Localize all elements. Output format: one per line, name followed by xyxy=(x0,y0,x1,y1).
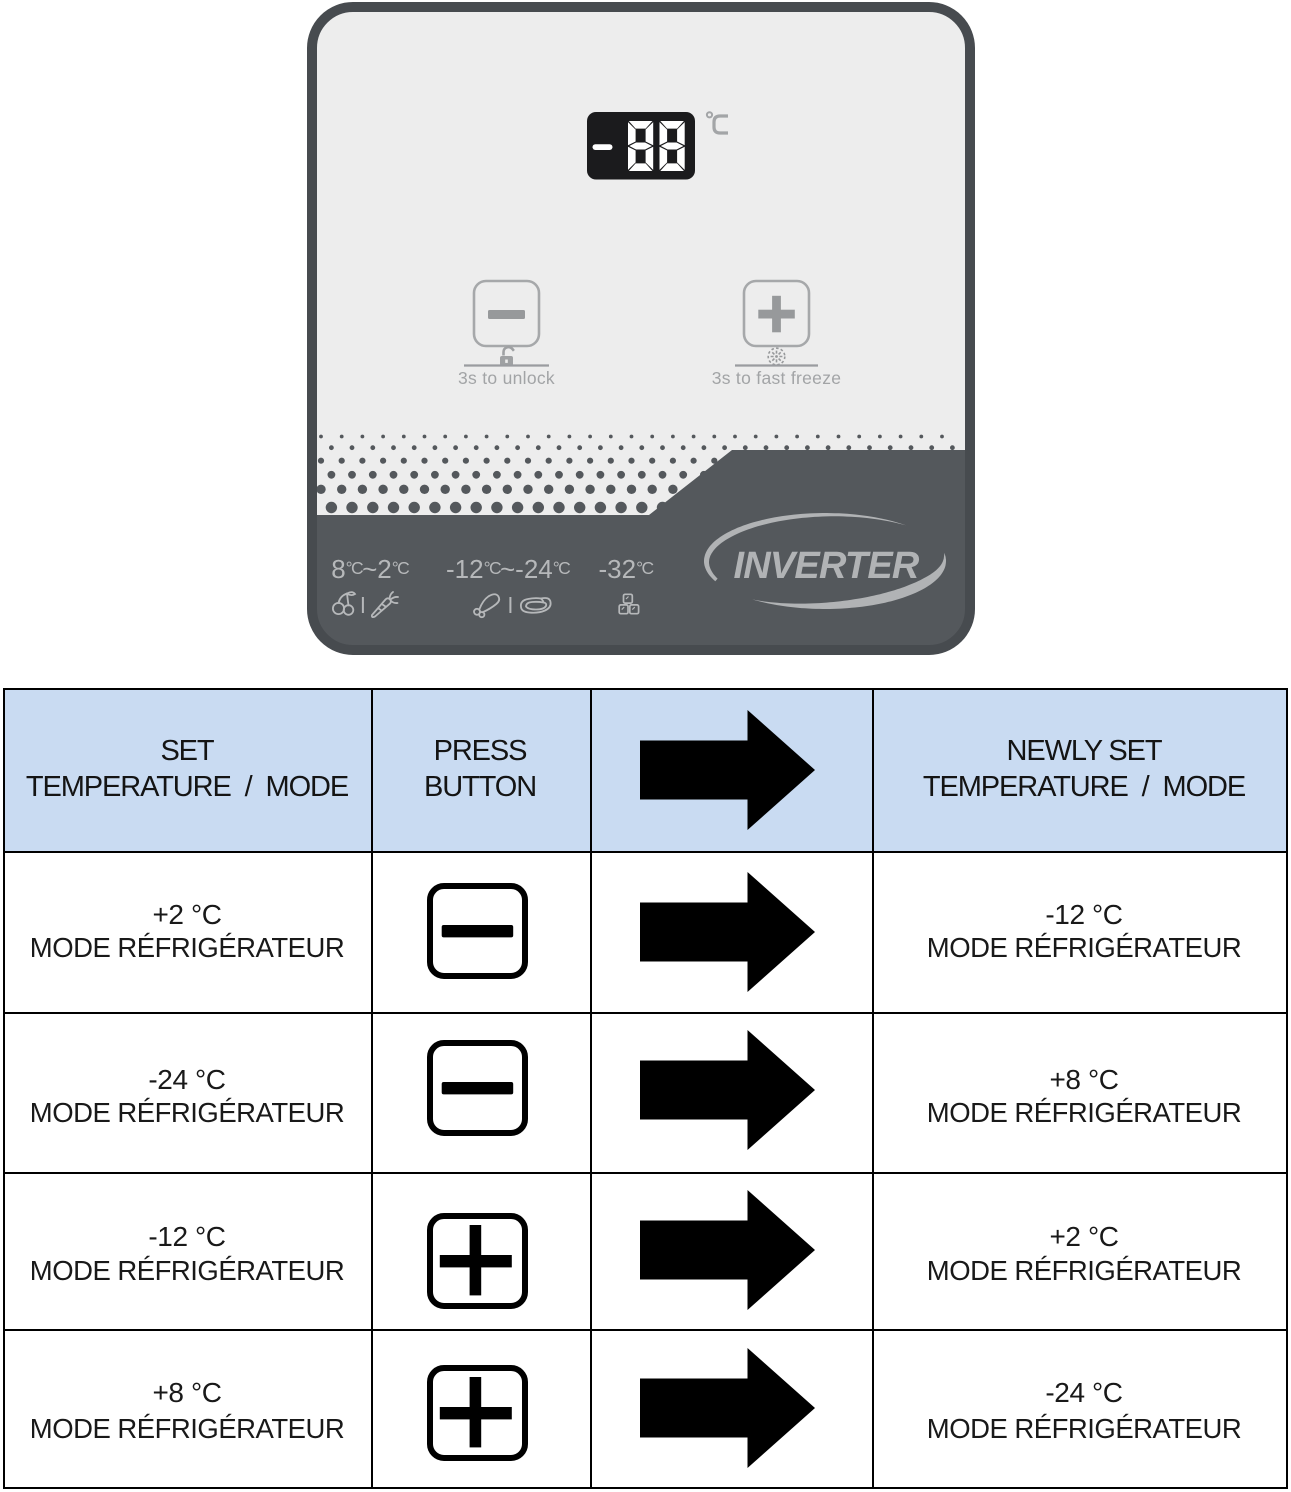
svg-text:3s to fast freeze: 3s to fast freeze xyxy=(712,368,842,388)
svg-text:INVERTER: INVERTER xyxy=(733,545,919,587)
svg-text:3s to unlock: 3s to unlock xyxy=(458,368,555,388)
svg-text:-12°C~-24°C: -12°C~-24°C xyxy=(446,554,570,584)
